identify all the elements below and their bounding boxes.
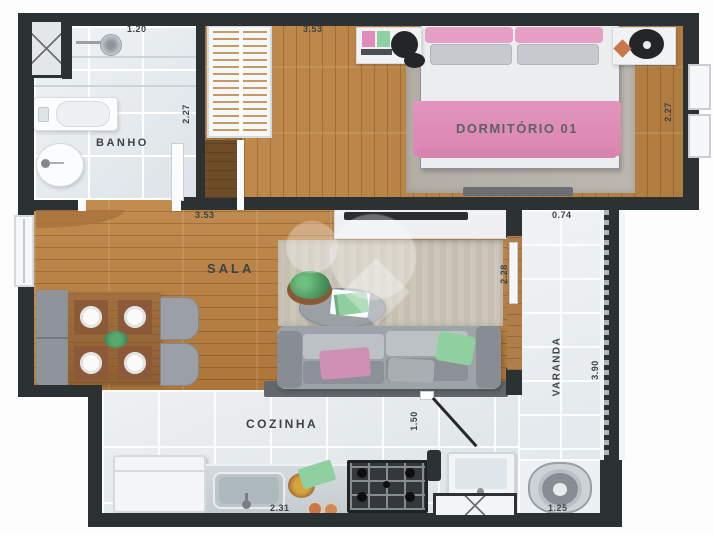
vinyl-disc-dot xyxy=(643,41,651,49)
sink-faucet xyxy=(50,162,64,164)
sofa-arm-left xyxy=(277,331,302,388)
sofa-pillow-green xyxy=(435,331,476,366)
sofa-arm-right xyxy=(476,326,501,388)
table-centerpiece-plant xyxy=(104,331,128,348)
kitchen-label: COZINHA xyxy=(246,417,318,431)
wall-right-bottom xyxy=(600,455,622,527)
balcony-railing xyxy=(600,210,625,460)
shower-glass-line-2 xyxy=(34,85,196,87)
closet xyxy=(207,25,272,138)
living-window xyxy=(14,215,34,287)
bathroom-door-jamb-left xyxy=(78,200,86,211)
bed-pillow-pink-right xyxy=(515,27,603,43)
balcony-label: VARANDA xyxy=(552,337,563,397)
dim-bedroom-depth: 2.27 xyxy=(663,97,673,127)
bed-pillow-grey-right xyxy=(517,44,599,65)
dining-chair-top xyxy=(160,297,199,340)
sofa-pillow-grey xyxy=(387,358,434,383)
vanity-faucet xyxy=(38,107,49,122)
wall-bedroom-bottom xyxy=(242,197,699,210)
wall-right xyxy=(683,13,699,210)
plate xyxy=(124,306,146,328)
wall-kitchen-inset-v xyxy=(88,385,102,527)
floor-lamp-base xyxy=(404,53,425,68)
wall-balcony-stub-top xyxy=(506,210,522,238)
bedroom-window-upper xyxy=(688,64,711,110)
dim-bathroom-depth: 2.27 xyxy=(181,99,191,129)
railing-dashes xyxy=(604,210,609,460)
wall-bathroom-bottom-right xyxy=(180,197,242,210)
shower-head-icon xyxy=(100,34,122,56)
wall-bathroom-right xyxy=(196,26,205,202)
plate xyxy=(80,306,102,328)
dim-kitchen-counter: 2.31 xyxy=(270,503,290,513)
laundry-tub-basin xyxy=(455,458,507,489)
decor-green-box xyxy=(377,31,390,47)
closet-hangers-right xyxy=(243,31,267,132)
dim-kitchen-passage: 1.50 xyxy=(409,406,419,436)
bed-pillow-pink-left xyxy=(425,27,513,43)
dim-laundry-width: 1.25 xyxy=(548,503,568,513)
vanity-basin xyxy=(56,101,110,127)
dim-balcony-top-width: 0.74 xyxy=(552,210,572,220)
burner xyxy=(357,492,367,502)
fridge xyxy=(113,455,206,513)
dining-chair-bottom xyxy=(160,343,199,386)
closet-hangers-left xyxy=(213,31,239,132)
washer-door-dot xyxy=(553,483,567,496)
shaft-duct-bottom xyxy=(433,493,517,518)
plant-icon xyxy=(290,271,330,299)
sofa-pillow-pink xyxy=(319,347,371,380)
plate xyxy=(80,352,102,374)
living-window-glass-line xyxy=(23,219,25,283)
kitchen-faucet-base xyxy=(242,500,251,509)
bed-pillow-grey-left xyxy=(430,44,512,65)
bedroom-label: DORMITÓRIO 01 xyxy=(456,121,578,136)
living-label: SALA xyxy=(207,261,254,276)
bedroom-window-lower xyxy=(688,114,711,158)
bathroom-door-jamb-right xyxy=(172,199,181,211)
bedroom-door-leaf xyxy=(205,140,238,198)
dim-living-width: 3.53 xyxy=(195,210,215,220)
shaft-duct-top xyxy=(29,19,64,78)
tv xyxy=(344,212,468,220)
burner xyxy=(405,468,415,478)
fridge-door-line xyxy=(115,470,204,472)
burner xyxy=(357,468,367,478)
dining-bench-split xyxy=(36,337,70,339)
bedroom-door-jamb xyxy=(237,140,244,210)
floor-plan: DORMITÓRIO 01 xyxy=(0,0,713,535)
decor-pink-box xyxy=(362,31,375,47)
dim-balcony-door: 2.28 xyxy=(499,259,509,289)
burner-center xyxy=(383,481,390,488)
trash-bin xyxy=(427,450,441,481)
bathroom-door-leaf xyxy=(171,143,184,201)
bed-foot-bench xyxy=(463,187,573,196)
bed-blanket-fold xyxy=(417,148,617,158)
dim-balcony-length: 3.90 xyxy=(590,355,600,385)
plate xyxy=(124,352,146,374)
dim-bathroom-width: 1.20 xyxy=(127,24,147,34)
bathroom-label: BANHO xyxy=(96,137,149,149)
book-green xyxy=(334,291,369,316)
wall-bottom xyxy=(88,513,622,527)
wall-balcony-stub-bottom xyxy=(506,368,522,395)
dim-bedroom-width: 3.53 xyxy=(303,24,323,34)
sink-drain xyxy=(41,159,50,168)
decor-tray xyxy=(361,49,392,55)
balcony-sliding-door xyxy=(509,242,518,304)
wall-top xyxy=(18,13,699,26)
burner xyxy=(405,492,415,502)
